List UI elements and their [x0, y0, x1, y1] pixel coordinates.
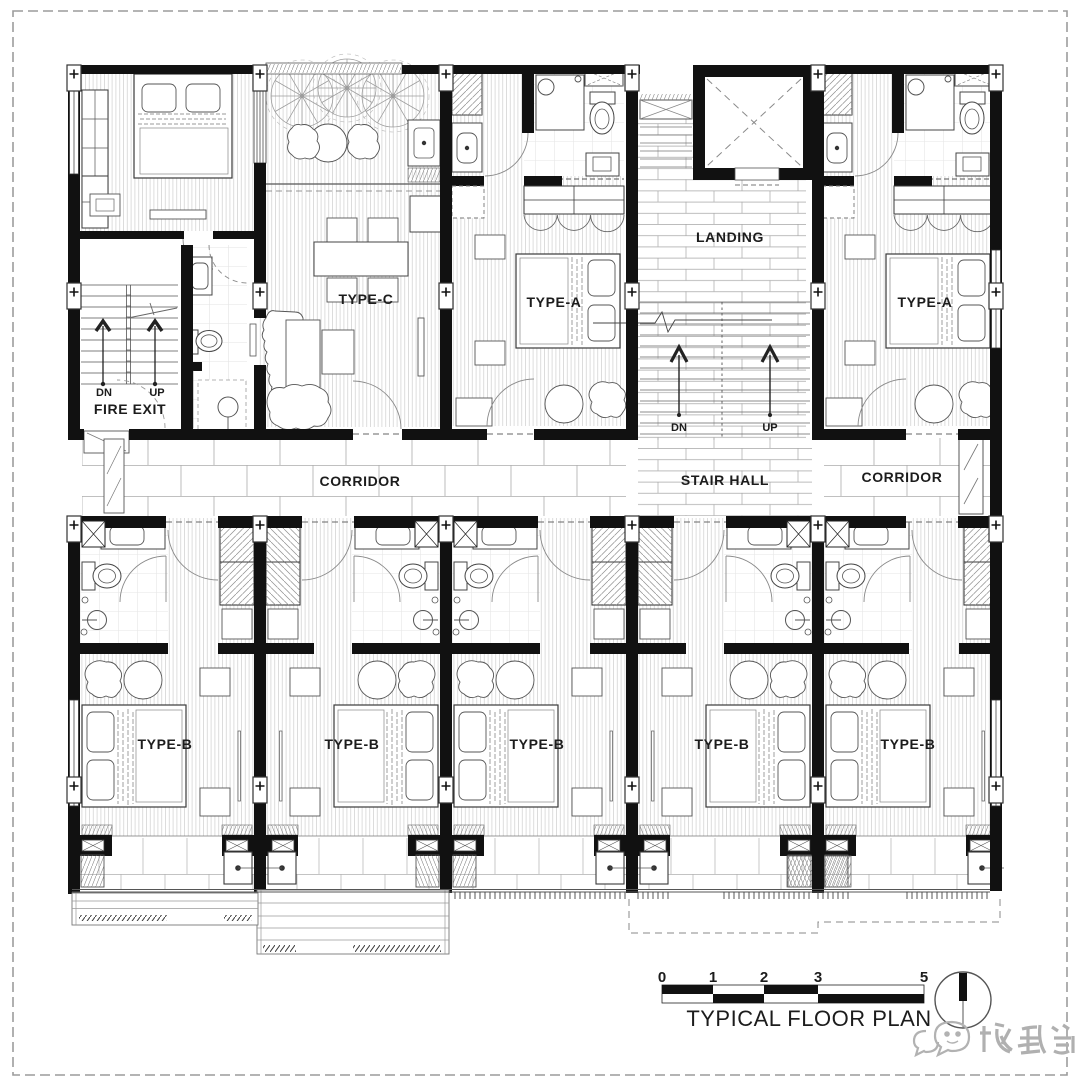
svg-text:TYPE-C: TYPE-C	[339, 291, 394, 307]
svg-text:2: 2	[760, 969, 768, 986]
svg-text:5: 5	[920, 969, 928, 986]
svg-text:TYPICAL FLOOR PLAN: TYPICAL FLOOR PLAN	[686, 1006, 931, 1031]
svg-text:LANDING: LANDING	[696, 229, 764, 245]
svg-text:1: 1	[709, 969, 717, 986]
svg-text:0: 0	[658, 969, 666, 986]
svg-text:TYPE-B: TYPE-B	[695, 736, 750, 752]
svg-text:UP: UP	[762, 422, 777, 434]
svg-text:UP: UP	[149, 387, 164, 399]
svg-text:CORRIDOR: CORRIDOR	[319, 473, 400, 489]
svg-text:STAIR HALL: STAIR HALL	[681, 472, 769, 488]
svg-text:TYPE-B: TYPE-B	[138, 736, 193, 752]
svg-text:FIRE EXIT: FIRE EXIT	[94, 401, 166, 417]
svg-text:CORRIDOR: CORRIDOR	[861, 469, 942, 485]
svg-text:DN: DN	[671, 422, 687, 434]
svg-text:TYPE-A: TYPE-A	[527, 294, 582, 310]
svg-text:TYPE-A: TYPE-A	[898, 294, 953, 310]
svg-text:3: 3	[814, 969, 822, 986]
svg-text:TYPE-B: TYPE-B	[325, 736, 380, 752]
svg-text:DN: DN	[96, 387, 112, 399]
svg-text:TYPE-B: TYPE-B	[881, 736, 936, 752]
svg-text:TYPE-B: TYPE-B	[510, 736, 565, 752]
